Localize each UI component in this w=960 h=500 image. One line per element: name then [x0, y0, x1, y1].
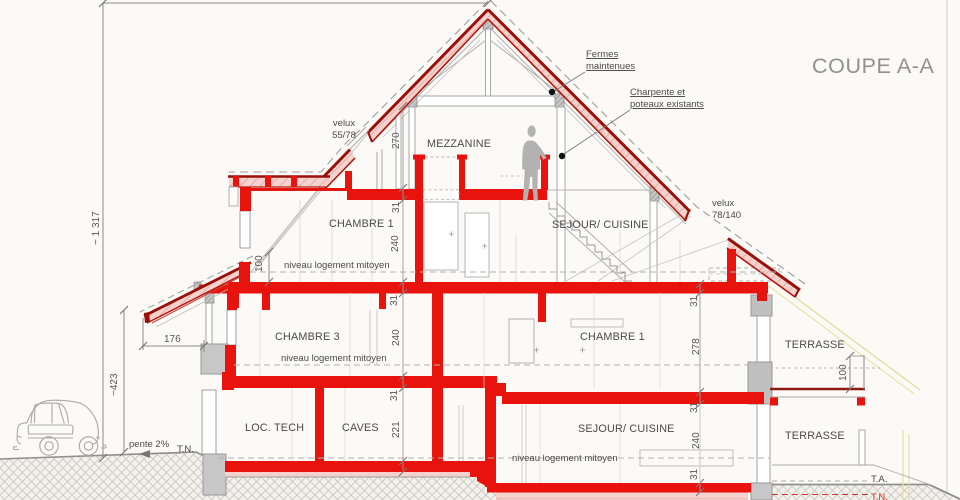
svg-text:CHAMBRE 3: CHAMBRE 3 [275, 331, 340, 343]
svg-text:T.N.: T.N. [871, 492, 888, 500]
svg-text:~423: ~423 [109, 373, 120, 396]
svg-text:176: 176 [164, 334, 181, 345]
svg-text:CHAMBRE 1: CHAMBRE 1 [580, 331, 645, 343]
svg-text:240: 240 [691, 432, 702, 449]
svg-text:31: 31 [389, 294, 400, 306]
svg-text:100: 100 [254, 255, 265, 272]
svg-text:poteaux existants: poteaux existants [630, 99, 704, 110]
svg-text:SEJOUR/ CUISINE: SEJOUR/ CUISINE [552, 219, 649, 231]
svg-text:31: 31 [689, 401, 700, 413]
svg-text:T.N.: T.N. [177, 444, 194, 455]
svg-text:CAVES: CAVES [342, 422, 379, 434]
svg-text:niveau logement mitoyen: niveau logement mitoyen [512, 453, 618, 464]
svg-text:31: 31 [689, 468, 700, 480]
svg-text:MEZZANINE: MEZZANINE [427, 138, 491, 150]
svg-text:COUPE A-A: COUPE A-A [812, 54, 935, 78]
svg-text:100: 100 [838, 364, 849, 381]
svg-text:78/140: 78/140 [712, 210, 741, 221]
svg-text:velux: velux [712, 198, 734, 209]
svg-text:pente 2%: pente 2% [129, 439, 170, 450]
svg-text:55/78: 55/78 [332, 130, 356, 141]
svg-text:240: 240 [390, 235, 401, 252]
svg-text:CHAMBRE 1: CHAMBRE 1 [329, 218, 394, 230]
svg-text:31: 31 [391, 201, 402, 213]
svg-text:31: 31 [689, 295, 700, 307]
svg-text:niveau logement mitoyen: niveau logement mitoyen [281, 353, 387, 364]
svg-text:Fermes: Fermes [586, 49, 618, 60]
svg-text:velux: velux [333, 118, 355, 129]
svg-text:Charpente et: Charpente et [630, 87, 685, 98]
svg-text:~ 1 317: ~ 1 317 [91, 211, 102, 245]
svg-text:TERRASSE: TERRASSE [785, 339, 845, 351]
svg-text:maintenues: maintenues [586, 61, 635, 72]
svg-text:278: 278 [691, 338, 702, 355]
svg-text:31: 31 [389, 389, 400, 401]
svg-text:270: 270 [391, 132, 402, 149]
svg-text:T.A.: T.A. [871, 474, 887, 485]
svg-text:221: 221 [391, 421, 402, 438]
svg-text:niveau logement mitoyen: niveau logement mitoyen [284, 260, 390, 271]
svg-text:LOC. TECH: LOC. TECH [245, 422, 304, 434]
svg-text:TERRASSE: TERRASSE [785, 430, 845, 442]
svg-text:240: 240 [391, 329, 402, 346]
svg-text:SEJOUR/ CUISINE: SEJOUR/ CUISINE [578, 423, 675, 435]
